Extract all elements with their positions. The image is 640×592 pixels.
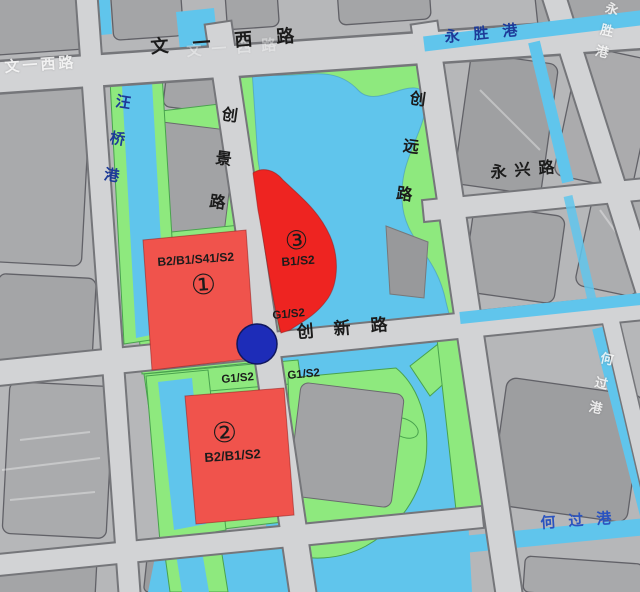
parcel1-number: ①: [190, 270, 217, 300]
block-in-south-park: [287, 382, 404, 508]
metro-station-marker[interactable]: [237, 324, 277, 364]
parcel2-code: B2/B1/S2: [204, 447, 261, 464]
parcel3-number: ③: [284, 226, 309, 254]
parcel2-number: ②: [211, 418, 238, 448]
planning-map: 文一西路 文一西路 永胜港 何过港 文一西路 创新路 永兴路 创景路 创远路 永…: [0, 0, 640, 592]
parcel3-code: B1/S2: [281, 254, 315, 268]
map-canvas: [0, 0, 640, 592]
